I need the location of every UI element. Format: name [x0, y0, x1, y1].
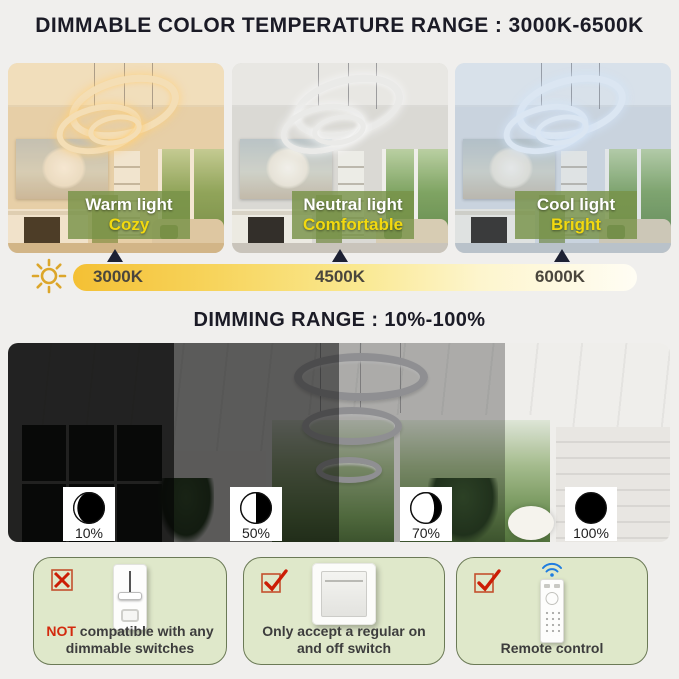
dimming-range-title: DIMMING RANGE : 10%-100%: [0, 309, 679, 332]
kelvin-label-6000k: 6000K: [535, 267, 585, 287]
ring-chandelier: [501, 67, 635, 167]
product-infographic: DIMMABLE COLOR TEMPERATURE RANGE : 3000K…: [0, 0, 679, 679]
color-temperature-title: DIMMABLE COLOR TEMPERATURE RANGE : 3000K…: [0, 14, 679, 38]
pointer-up-icon: [554, 249, 570, 262]
dim-percent-label: 70%: [400, 526, 452, 540]
lifestyle-photo-cool: Cool light Bright: [455, 63, 671, 253]
moon-phase-10-icon: [71, 490, 107, 526]
sun-icon: [30, 257, 68, 295]
kelvin-label-4500k: 4500K: [315, 267, 365, 287]
dim-percent-label: 10%: [63, 526, 115, 540]
remote-control-illustration: [537, 562, 567, 643]
rocker-groove: [325, 580, 363, 582]
lifestyle-photo-warm: Warm light Cozy: [8, 63, 224, 253]
dim-percent-label: 50%: [230, 526, 282, 540]
mode-feel: Comfortable: [292, 215, 414, 235]
remote-button: [544, 584, 550, 588]
compatibility-text-body: Remote control: [501, 640, 604, 656]
mode-feel: Cozy: [68, 215, 190, 235]
wifi-icon: [541, 562, 563, 577]
dimmer-knob: [118, 592, 142, 600]
dim-level-badge: 70%: [400, 487, 452, 541]
dimmer-button: [121, 609, 139, 622]
dimming-demo-photo: 10% 50% 70% 100%: [8, 343, 670, 542]
compatibility-card-dimmer: NOT compatible with any dimmable switche…: [33, 557, 227, 665]
pointer-up-icon: [332, 249, 348, 262]
mode-label-warm: Warm light Cozy: [68, 191, 190, 239]
mode-name: Warm light: [68, 195, 190, 215]
cross-icon: [50, 568, 76, 594]
mode-name: Neutral light: [292, 195, 414, 215]
compatibility-text: Remote control: [463, 640, 641, 657]
compatibility-text-body: compatible with any dimmable switches: [66, 623, 214, 656]
lifestyle-photo-neutral: Neutral light Comfortable: [232, 63, 448, 253]
compatibility-text: Only accept a regular on and off switch: [250, 623, 438, 657]
compatibility-text: NOT compatible with any dimmable switche…: [40, 623, 220, 657]
check-icon: [260, 568, 288, 594]
dimmer-switch-illustration: [113, 564, 147, 630]
dim-level-badge: 100%: [565, 487, 617, 541]
pointer-up-icon: [107, 249, 123, 262]
not-highlight: NOT: [46, 623, 76, 639]
dim-percent-label: 100%: [565, 526, 617, 540]
kelvin-label-3000k: 3000K: [93, 267, 143, 287]
check-icon: [473, 568, 501, 594]
dim-level-badge: 50%: [230, 487, 282, 541]
compatibility-card-remote: Remote control: [456, 557, 648, 665]
moon-phase-100-icon: [573, 490, 609, 526]
dim-level-badge: 10%: [63, 487, 115, 541]
compatibility-text-body: Only accept a regular on and off switch: [262, 623, 425, 656]
remote-keypad: [544, 610, 560, 636]
moon-phase-50-icon: [238, 490, 274, 526]
color-temperature-gradient-bar: 3000K 4500K 6000K: [73, 264, 637, 291]
mode-name: Cool light: [515, 195, 637, 215]
moon-phase-70-icon: [408, 490, 444, 526]
remote-button: [554, 584, 560, 588]
compatibility-card-regular-switch: Only accept a regular on and off switch: [243, 557, 445, 665]
mode-feel: Bright: [515, 215, 637, 235]
ring-chandelier: [278, 67, 412, 167]
rocker-switch-illustration: [312, 563, 376, 625]
remote-dpad: [546, 592, 559, 605]
mode-label-neutral: Neutral light Comfortable: [292, 191, 414, 239]
mode-label-cool: Cool light Bright: [515, 191, 637, 239]
rocker-plate: [321, 571, 367, 617]
ring-chandelier: [54, 67, 188, 167]
remote-body: [540, 579, 564, 643]
